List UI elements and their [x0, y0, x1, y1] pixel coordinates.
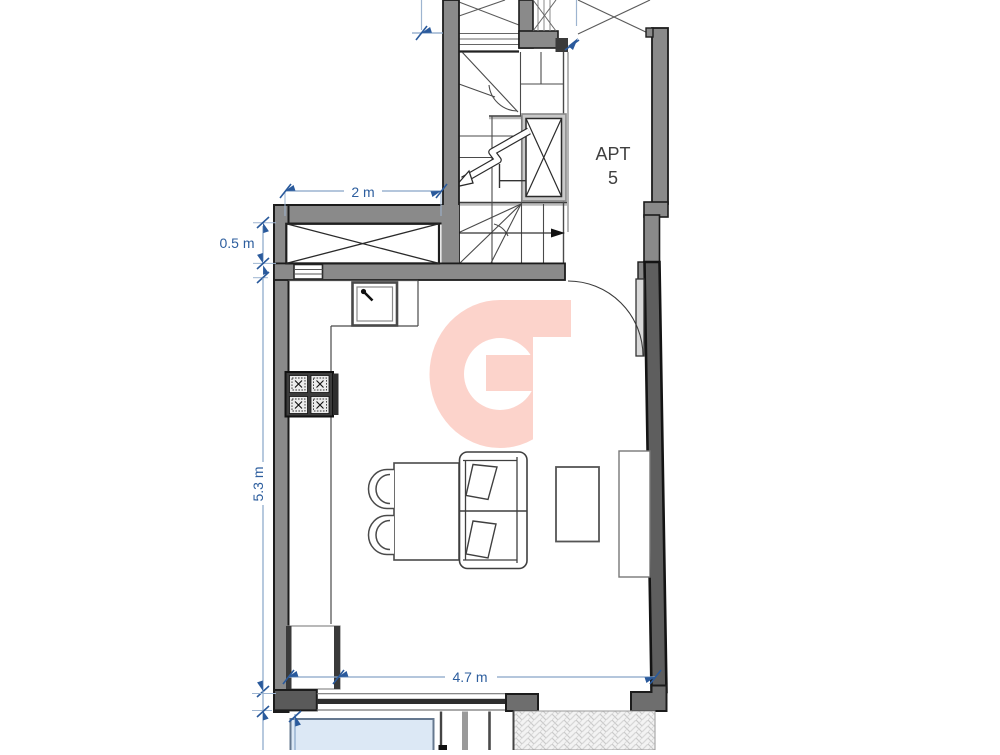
svg-text:0.5 m: 0.5 m [219, 235, 254, 251]
svg-text:APT: APT [595, 144, 630, 164]
svg-text:4.7 m: 4.7 m [452, 669, 487, 685]
svg-text:5: 5 [608, 168, 618, 188]
svg-text:5.3 m: 5.3 m [250, 466, 266, 501]
svg-text:2 m: 2 m [351, 184, 374, 200]
